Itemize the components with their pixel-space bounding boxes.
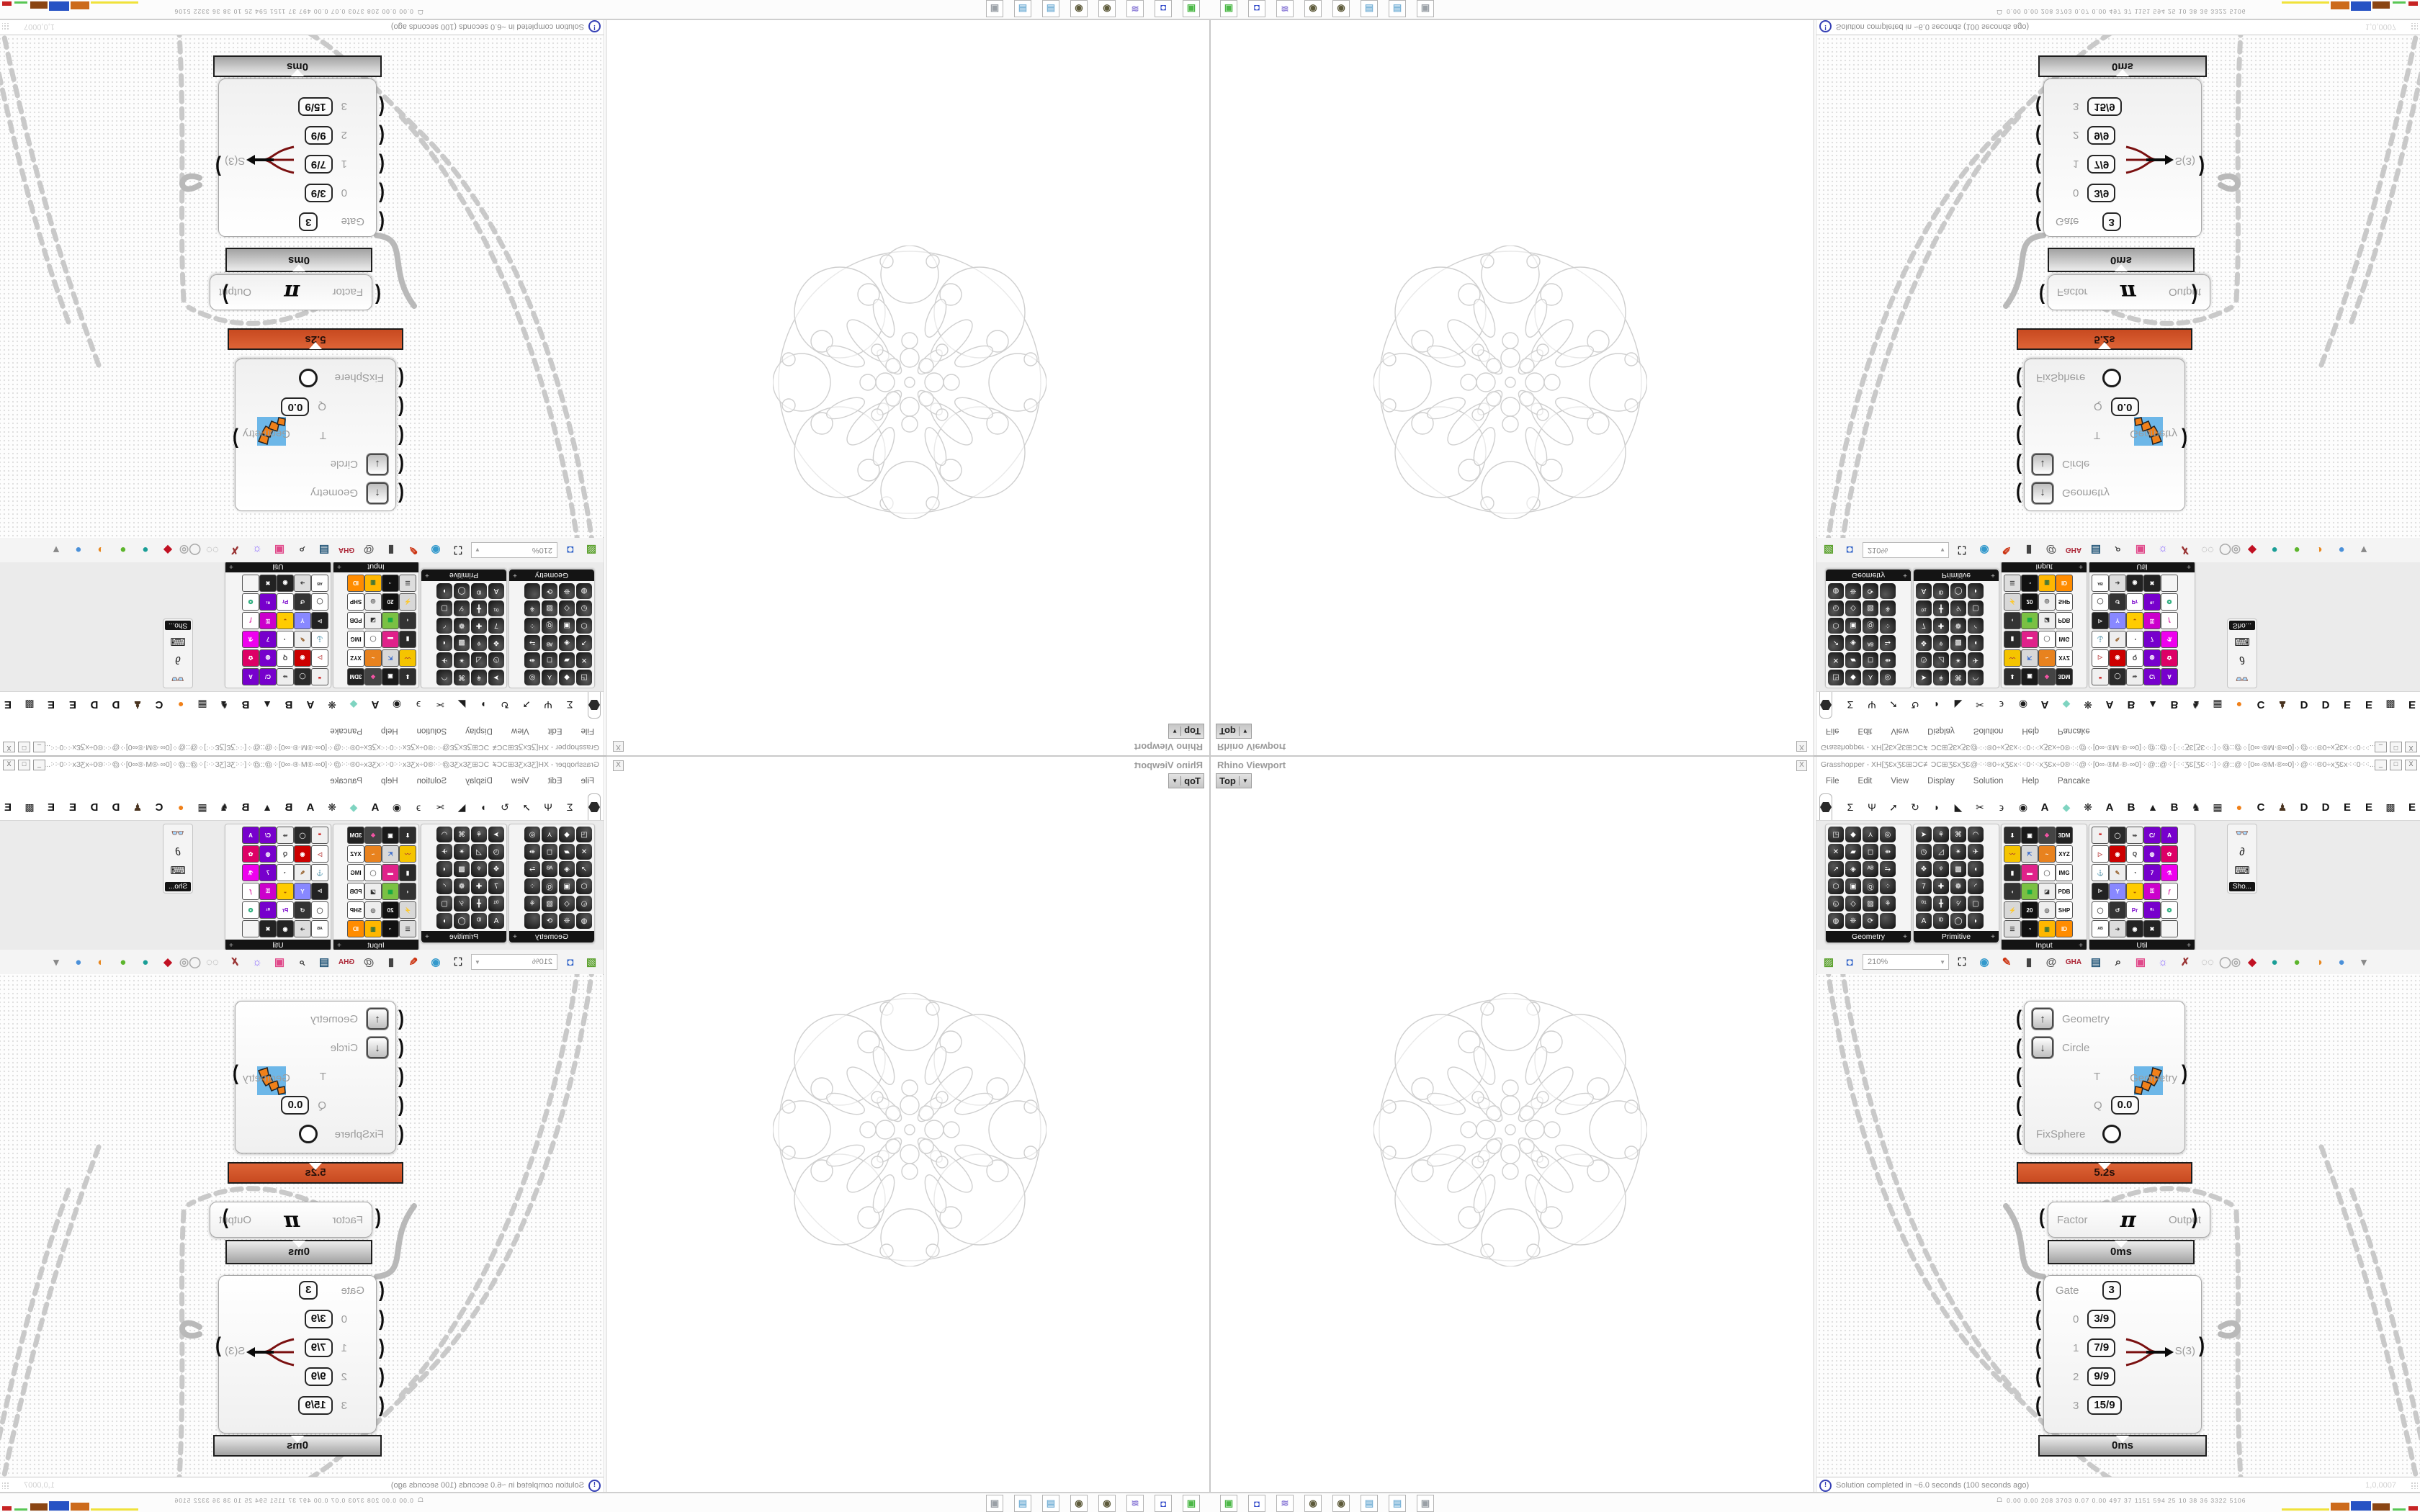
toolbar-icon[interactable]: ▣ xyxy=(272,542,287,558)
component-icon[interactable]: ❝ xyxy=(311,827,328,844)
toolbar-icon[interactable]: ● xyxy=(71,542,86,558)
category-tab[interactable]: ✂ xyxy=(429,801,451,814)
category-tab[interactable]: B xyxy=(235,699,256,711)
component-icon[interactable]: ⇻ xyxy=(524,652,540,668)
component-icon[interactable]: ⚘ xyxy=(1933,670,1949,685)
grasshopper-canvas[interactable]: ↑Geometry(↓Circle(T(Q0.0(FixSphere( Geom… xyxy=(0,974,603,1477)
menu-item-display[interactable]: Display xyxy=(456,777,502,786)
category-tab[interactable]: ◉ xyxy=(386,699,408,711)
component-icon[interactable]: Ⓠ xyxy=(1863,618,1878,634)
component-icon[interactable]: ID xyxy=(2056,920,2073,937)
gate-row-value[interactable]: 3/9 xyxy=(305,1310,333,1328)
component-icon[interactable]: Q xyxy=(277,845,294,863)
component-icon[interactable]: ▰ xyxy=(1845,652,1861,668)
component-icon[interactable]: A xyxy=(488,583,504,599)
expand-plus-icon[interactable]: + xyxy=(2079,563,2083,571)
show-panel-icon[interactable]: ∂ xyxy=(163,843,192,862)
output-connector[interactable]: ) xyxy=(2192,286,2197,304)
component-icon[interactable]: ▦ xyxy=(2021,612,2038,629)
menu-item-pancake[interactable]: Pancake xyxy=(321,777,372,786)
menu-item-edit[interactable]: Edit xyxy=(539,777,572,786)
category-tab[interactable]: ● xyxy=(2228,699,2250,711)
component-icon[interactable]: ▷ xyxy=(2092,649,2109,667)
component-icon[interactable]: ◻ xyxy=(542,652,557,668)
expand-plus-icon[interactable]: + xyxy=(425,572,429,580)
show-panel-icon[interactable]: ∂ xyxy=(163,650,192,669)
component-icon[interactable]: ➜ xyxy=(2109,920,2126,937)
category-tab[interactable]: ▦ xyxy=(192,699,213,711)
component-icon[interactable]: ✴ xyxy=(1950,844,1966,860)
component-icon[interactable]: ⌲ xyxy=(311,612,328,629)
component-icon[interactable] xyxy=(2161,575,2178,592)
palette-panel-label[interactable]: Input+ xyxy=(2002,561,2087,572)
gate-row-value[interactable]: 15/9 xyxy=(298,1396,332,1415)
taskbar-app-icon[interactable]: ≋ xyxy=(1276,1495,1294,1512)
component-icon[interactable]: ◈ xyxy=(559,861,575,877)
toolbar-icon[interactable]: ◯◎ xyxy=(2222,954,2238,970)
component-icon[interactable] xyxy=(242,575,259,592)
input-connector[interactable]: ( xyxy=(379,1397,385,1415)
gate-value[interactable]: 3 xyxy=(2102,212,2121,231)
component-icon[interactable]: ◜ xyxy=(1968,618,1984,634)
component-icon[interactable]: ▦ xyxy=(382,883,399,900)
component-icon[interactable]: ᴬᴮ xyxy=(1863,635,1878,651)
gate-component[interactable]: Gate 3 03/9(17/9(29/9(315/9( S(3) xyxy=(218,78,377,237)
toolbar-icon[interactable]: ▾ xyxy=(48,954,64,970)
component-icon[interactable]: ◈ xyxy=(1845,861,1861,877)
arrow-up-button[interactable]: ↑ xyxy=(2032,1008,2053,1030)
category-tab[interactable]: ▦ xyxy=(2207,801,2228,814)
component-icon[interactable]: IMG xyxy=(2056,631,2073,648)
component-icon[interactable]: ▮ xyxy=(2004,864,2021,881)
component-icon[interactable]: Pr xyxy=(277,901,294,919)
component-icon[interactable]: 7 xyxy=(259,864,277,881)
component-icon[interactable]: ❝ xyxy=(311,668,328,685)
component-icon[interactable]: 7 xyxy=(488,878,504,894)
component-icon[interactable]: ◯ xyxy=(1950,583,1966,599)
input-connector[interactable]: ( xyxy=(2016,1039,2022,1057)
component-icon[interactable]: Y xyxy=(2109,612,2126,629)
category-tab[interactable]: ♞ xyxy=(2185,699,2207,711)
category-tab[interactable]: B xyxy=(2164,801,2185,814)
input-connector[interactable]: ( xyxy=(379,1368,385,1386)
fixsphere-component[interactable]: ↑Geometry(↓Circle(T(Q0.0(FixSphere( Geom… xyxy=(2024,359,2185,511)
component-icon[interactable]: ◍ xyxy=(1828,913,1844,929)
fixsphere-component[interactable]: ↑Geometry(↓Circle(T(Q0.0(FixSphere( Geom… xyxy=(235,359,396,511)
tab-params[interactable] xyxy=(588,793,601,820)
output-connector[interactable]: ) xyxy=(2182,430,2187,448)
show-panel-icon[interactable]: ∂ xyxy=(2228,843,2257,862)
category-tab[interactable]: ❋ xyxy=(321,801,343,814)
component-icon[interactable]: ⋏ xyxy=(1863,827,1878,842)
component-icon[interactable]: ↺ xyxy=(294,901,311,919)
component-icon[interactable]: ▣ xyxy=(559,878,575,894)
toolbar-icon[interactable]: ◆ xyxy=(160,954,176,970)
component-icon[interactable]: ↺ xyxy=(2109,901,2126,919)
component-icon[interactable]: ⇻ xyxy=(1880,844,1896,860)
component-icon[interactable]: ◉ xyxy=(277,920,294,937)
menu-item-file[interactable]: File xyxy=(571,777,604,786)
taskbar-app-icon[interactable]: ▤ xyxy=(1361,0,1378,17)
category-tab[interactable]: ◉ xyxy=(2012,801,2034,814)
show-panel-icon[interactable]: ⌨ xyxy=(2228,631,2257,650)
component-icon[interactable]: ƒ xyxy=(2161,883,2178,900)
output-connector[interactable]: ) xyxy=(2199,1337,2205,1355)
component-icon[interactable]: ◵ xyxy=(1828,600,1844,616)
viewport-projection-button[interactable]: Top ▼ xyxy=(1216,724,1252,739)
tray-expand-icon[interactable]: ☖ xyxy=(1996,8,2002,16)
toolbar-icon[interactable]: ● xyxy=(2334,954,2349,970)
input-connector[interactable]: ( xyxy=(2039,286,2045,304)
toolbar-icon[interactable]: ◯◎ xyxy=(182,954,198,970)
show-panel-icon[interactable]: 👓 xyxy=(2228,669,2257,688)
input-connector[interactable]: ( xyxy=(375,1209,381,1227)
input-connector[interactable]: ( xyxy=(398,1125,404,1143)
component-icon[interactable]: ⇱ xyxy=(382,649,399,667)
component-icon[interactable]: ~ xyxy=(2038,649,2056,667)
component-icon[interactable]: ◗ xyxy=(436,913,452,929)
show-panel-label[interactable]: Sho... xyxy=(2229,621,2255,630)
component-icon[interactable]: ⁰¹ xyxy=(259,901,277,919)
category-tab[interactable]: E xyxy=(2336,699,2358,711)
component-icon[interactable]: 7 xyxy=(2143,864,2161,881)
component-icon[interactable]: ✚ xyxy=(471,618,487,634)
toolbar-icon[interactable]: ◉ xyxy=(428,542,444,558)
component-icon[interactable]: ◖ xyxy=(399,612,416,629)
component-icon[interactable]: ✚ xyxy=(1933,618,1949,634)
category-tab[interactable]: ◣ xyxy=(1948,699,1969,711)
toolbar-icon[interactable]: ✗ xyxy=(2177,954,2193,970)
gate-value[interactable]: 3 xyxy=(299,212,318,231)
window-control-button[interactable]: X xyxy=(2405,742,2417,753)
component-icon[interactable]: ᵠ xyxy=(1933,861,1949,877)
category-tab[interactable]: Σ xyxy=(1839,801,1861,813)
component-icon[interactable]: ◎ xyxy=(524,670,540,685)
component-icon[interactable]: ▢ xyxy=(1968,600,1984,616)
tray-expand-icon[interactable]: ☖ xyxy=(418,1496,423,1504)
toolbar-icon[interactable]: ✎ xyxy=(1999,542,2015,558)
component-icon[interactable]: ▣ xyxy=(559,618,575,634)
toolbar-icon[interactable]: ◆ xyxy=(160,542,176,558)
component-icon[interactable]: ◍ xyxy=(1828,583,1844,599)
category-tab[interactable]: ❋ xyxy=(321,699,343,711)
component-icon[interactable]: ❂ xyxy=(2161,901,2178,919)
category-tab[interactable]: ◣ xyxy=(1948,801,1969,814)
component-icon[interactable]: ▥ xyxy=(2038,575,2056,592)
component-icon[interactable]: PDB xyxy=(347,883,364,900)
category-tab[interactable]: ◗ xyxy=(1926,801,1948,813)
component-icon[interactable]: ⚡ xyxy=(399,593,416,611)
category-tab[interactable]: ϶ xyxy=(1991,699,2012,711)
component-icon[interactable]: ◪ xyxy=(2038,883,2056,900)
grasshopper-canvas[interactable]: ↑Geometry(↓Circle(T(Q0.0(FixSphere( Geom… xyxy=(1817,974,2420,1477)
gate-row-value[interactable]: 9/9 xyxy=(305,1367,333,1386)
input-connector[interactable]: ( xyxy=(2016,369,2022,387)
input-connector[interactable]: ( xyxy=(2016,485,2022,503)
component-icon[interactable]: 3DM xyxy=(347,668,364,685)
component-icon[interactable]: ⁰¹ xyxy=(488,600,504,616)
component-icon[interactable]: ◪ xyxy=(364,883,382,900)
component-icon[interactable]: ◯ xyxy=(454,913,470,929)
component-icon[interactable]: ⌘ xyxy=(454,670,470,685)
component-icon[interactable]: ⟳ xyxy=(1863,583,1878,599)
taskbar-app-icon[interactable]: ≋ xyxy=(1126,0,1144,17)
output-connector[interactable]: ) xyxy=(2192,1209,2197,1227)
component-icon[interactable]: 7 xyxy=(488,618,504,634)
toolbar-icon[interactable]: ⌕ xyxy=(294,954,310,970)
show-panel-label[interactable]: Sho... xyxy=(165,621,191,630)
menu-item-pancake[interactable]: Pancake xyxy=(2048,726,2099,735)
component-icon[interactable]: ⥲ xyxy=(1880,861,1896,877)
input-connector[interactable]: ( xyxy=(398,398,404,416)
palette-panel-label[interactable]: Geometry+ xyxy=(509,931,594,942)
component-icon[interactable]: ⬡ xyxy=(1828,618,1844,634)
component-icon[interactable]: ⁰¹ xyxy=(2143,901,2161,919)
component-icon[interactable]: ◔ xyxy=(277,631,294,648)
component-icon[interactable]: ▩ xyxy=(1950,861,1966,877)
component-icon[interactable]: ✿ xyxy=(2161,845,2178,863)
component-icon[interactable]: ✚ xyxy=(1933,878,1949,894)
component-icon[interactable]: ⚿ xyxy=(2143,883,2161,900)
category-tab[interactable]: C xyxy=(148,699,170,711)
taskbar-app-icon[interactable]: ◉ xyxy=(1098,0,1116,17)
component-icon[interactable]: ✈ xyxy=(1968,844,1984,860)
component-icon[interactable]: XYZ xyxy=(2056,845,2073,863)
category-tab[interactable]: Σ xyxy=(1839,699,1861,711)
component-icon[interactable]: ↗ xyxy=(1828,635,1844,651)
category-tab[interactable]: ◉ xyxy=(2012,699,2034,711)
component-icon[interactable]: ◔ xyxy=(2021,575,2038,592)
toolbar-icon[interactable]: ▾ xyxy=(2356,954,2372,970)
component-icon[interactable]: ▢ xyxy=(1968,896,1984,912)
category-tab[interactable]: A xyxy=(2099,699,2120,711)
input-connector[interactable]: ( xyxy=(2016,1068,2022,1086)
toolbar-icon[interactable]: ⛶ xyxy=(1954,954,1970,970)
component-icon[interactable]: A xyxy=(2161,668,2178,685)
component-icon[interactable]: ❖ xyxy=(488,861,504,877)
zoom-level-input[interactable]: 210% ▼ xyxy=(471,954,557,970)
category-tab[interactable]: A xyxy=(364,801,386,814)
input-connector[interactable]: ( xyxy=(2035,1310,2041,1328)
toolbar-icon[interactable]: ◆ xyxy=(2244,954,2260,970)
palette-panel-label[interactable]: Geometry+ xyxy=(1826,570,1911,581)
component-icon[interactable]: ◯ xyxy=(2038,864,2056,881)
component-icon[interactable]: ✴ xyxy=(454,652,470,668)
menu-item-edit[interactable]: Edit xyxy=(539,726,572,735)
toolbar-icon[interactable]: GHA xyxy=(339,954,354,970)
viewport-projection-button[interactable]: Top ▼ xyxy=(1168,724,1204,739)
category-tab[interactable]: E xyxy=(62,699,84,711)
toolbar-icon[interactable]: ◉ xyxy=(1976,542,1992,558)
category-tab[interactable]: ➚ xyxy=(516,801,537,814)
component-icon[interactable]: A xyxy=(1916,913,1932,929)
component-icon[interactable]: ◖ xyxy=(436,861,452,877)
show-panel-icon[interactable]: ⌨ xyxy=(163,631,192,650)
component-icon[interactable]: ID xyxy=(347,920,364,937)
component-icon[interactable]: ⚘ xyxy=(524,600,540,616)
component-icon[interactable]: ⇻ xyxy=(1880,652,1896,668)
category-tab[interactable]: ◆ xyxy=(343,699,364,711)
component-icon[interactable]: ᴬᴮ xyxy=(542,861,557,877)
component-icon[interactable]: ▰ xyxy=(559,652,575,668)
component-icon[interactable]: ▦ xyxy=(2021,883,2038,900)
component-icon[interactable]: ▢ xyxy=(436,600,452,616)
toolbar-icon[interactable]: ▤ xyxy=(2088,542,2104,558)
component-icon[interactable]: ✎ xyxy=(2109,864,2126,881)
component-icon[interactable]: ◯ xyxy=(454,583,470,599)
toolbar-icon[interactable]: ▣ xyxy=(2133,542,2148,558)
toolbar-icon[interactable]: ☼ xyxy=(2155,542,2171,558)
window-control-button[interactable]: _ xyxy=(2375,760,2387,770)
component-icon[interactable]: ◆ xyxy=(1845,670,1861,685)
taskbar-app-icon[interactable]: ◉ xyxy=(1098,1495,1116,1512)
component-icon[interactable]: A xyxy=(242,668,259,685)
component-icon[interactable]: ᶜ⁄ xyxy=(454,896,470,912)
component-icon[interactable]: ◔ xyxy=(2126,631,2143,648)
toolbar-icon[interactable]: ▣ xyxy=(272,954,287,970)
component-icon[interactable]: 3DM xyxy=(347,827,364,844)
category-tab[interactable]: ◣ xyxy=(451,801,472,814)
component-icon[interactable]: ◖ xyxy=(2004,612,2021,629)
save-file-icon[interactable]: ◘ xyxy=(1842,542,1857,558)
toolbar-icon[interactable]: ⛶ xyxy=(450,542,466,558)
component-icon[interactable]: ⚘ xyxy=(524,896,540,912)
gate-row-value[interactable]: 15/9 xyxy=(2087,1396,2121,1415)
viewport-close-button[interactable]: X xyxy=(613,760,624,771)
gate-row-value[interactable]: 9/9 xyxy=(2087,1367,2115,1386)
category-tab[interactable]: ♞ xyxy=(2185,801,2207,814)
input-connector[interactable]: ( xyxy=(398,427,404,445)
input-connector[interactable]: ( xyxy=(398,485,404,503)
category-tab[interactable]: Ψ xyxy=(537,801,559,813)
arrow-up-button[interactable]: ↑ xyxy=(2032,482,2053,504)
taskbar-app-icon[interactable]: ◉ xyxy=(1070,0,1088,17)
category-tab[interactable]: ➚ xyxy=(1883,699,1904,711)
component-icon[interactable]: ◔ xyxy=(2021,920,2038,937)
component-icon[interactable]: ✚ xyxy=(471,878,487,894)
component-icon[interactable]: ❖ xyxy=(1916,861,1932,877)
show-panel-icon[interactable]: ∂ xyxy=(2228,650,2257,669)
expand-plus-icon[interactable]: + xyxy=(229,563,233,571)
component-icon[interactable]: ◍ xyxy=(576,583,592,599)
component-icon[interactable]: ◜ xyxy=(436,878,452,894)
component-icon[interactable]: ▦ xyxy=(382,612,399,629)
window-control-button[interactable]: □ xyxy=(18,742,30,753)
palette-panel-label[interactable]: Input+ xyxy=(333,561,418,572)
component-icon[interactable]: ✈ xyxy=(1968,652,1984,668)
component-icon[interactable]: ◷ xyxy=(488,844,504,860)
param-value-box[interactable]: 0.0 xyxy=(2111,397,2139,416)
component-icon[interactable]: ◯ xyxy=(2092,901,2109,919)
component-icon[interactable]: ◉ xyxy=(2126,575,2143,592)
menu-item-help[interactable]: Help xyxy=(2012,777,2048,786)
component-icon[interactable] xyxy=(242,920,259,937)
component-icon[interactable]: ◎ xyxy=(1880,827,1896,842)
component-icon[interactable]: ⬇ xyxy=(399,668,416,685)
component-icon[interactable]: ⚿ xyxy=(259,883,277,900)
component-icon[interactable]: ↺ xyxy=(2109,593,2126,611)
component-icon[interactable]: C/ xyxy=(259,668,277,685)
component-icon[interactable] xyxy=(2161,920,2178,937)
input-connector[interactable]: ( xyxy=(398,456,404,474)
component-icon[interactable]: ⁰¹ xyxy=(2143,593,2161,611)
category-tab[interactable]: E xyxy=(2401,699,2420,711)
toolbar-icon[interactable]: ● xyxy=(2267,954,2282,970)
component-icon[interactable]: ╋ xyxy=(471,896,487,912)
component-icon[interactable]: ◯ xyxy=(1950,913,1966,929)
category-tab[interactable]: C xyxy=(2250,699,2272,711)
component-icon[interactable]: C/ xyxy=(259,827,277,844)
component-icon[interactable]: ◠ xyxy=(436,827,452,842)
category-tab[interactable]: ◉ xyxy=(386,801,408,814)
component-icon[interactable]: A xyxy=(2161,827,2178,844)
input-connector[interactable]: ( xyxy=(379,1282,385,1300)
output-connector[interactable]: ) xyxy=(233,430,238,448)
category-tab[interactable]: D xyxy=(105,699,127,711)
component-icon[interactable]: ⟳ xyxy=(542,913,557,929)
component-icon[interactable]: ᴵᴰ xyxy=(471,583,487,599)
taskbar-app-icon[interactable]: ▣ xyxy=(1220,1495,1237,1512)
menu-item-edit[interactable]: Edit xyxy=(1849,726,1882,735)
component-icon[interactable]: ✴ xyxy=(1950,652,1966,668)
component-icon[interactable]: 〰 xyxy=(399,845,416,863)
component-icon[interactable]: ⁰¹ xyxy=(1916,896,1932,912)
component-icon[interactable]: ▮ xyxy=(399,631,416,648)
component-icon[interactable]: ▨ xyxy=(542,896,557,912)
component-icon[interactable]: IMG xyxy=(347,864,364,881)
component-icon[interactable]: ◈ xyxy=(559,635,575,651)
component-icon[interactable]: ◎ xyxy=(2038,593,2056,611)
output-connector[interactable]: ) xyxy=(215,1337,221,1355)
toolbar-icon[interactable]: ✗ xyxy=(227,542,243,558)
toolbar-icon[interactable]: ▤ xyxy=(2088,954,2104,970)
toolbar-icon[interactable]: GHA xyxy=(2066,542,2081,558)
taskbar-app-icon[interactable]: ▣ xyxy=(986,1495,1003,1512)
tab-params[interactable] xyxy=(1819,692,1832,719)
component-icon[interactable]: ▣ xyxy=(382,827,399,844)
component-icon[interactable]: C/ xyxy=(2143,668,2161,685)
expand-plus-icon[interactable]: + xyxy=(2079,942,2083,950)
toolbar-icon[interactable]: ⛶ xyxy=(1954,542,1970,558)
toolbar-icon[interactable]: ◆ xyxy=(2244,542,2260,558)
taskbar-app-icon[interactable]: ◉ xyxy=(1304,1495,1322,1512)
palette-panel-label[interactable]: Geometry+ xyxy=(1826,931,1911,942)
category-tab[interactable]: ▲ xyxy=(256,699,278,711)
menu-item-help[interactable]: Help xyxy=(372,777,408,786)
component-icon[interactable]: ◠ xyxy=(1968,827,1984,842)
component-icon[interactable]: SHP xyxy=(347,901,364,919)
component-icon[interactable]: ◖ xyxy=(399,883,416,900)
component-icon[interactable] xyxy=(524,913,540,929)
component-icon[interactable]: ⬡ xyxy=(576,618,592,634)
component-icon[interactable]: Ⓠ xyxy=(542,618,557,634)
param-value-box[interactable]: 0.0 xyxy=(281,1096,309,1115)
expand-plus-icon[interactable]: + xyxy=(513,572,517,580)
component-icon[interactable]: ◒ xyxy=(2126,612,2143,629)
component-icon[interactable]: ◗ xyxy=(436,583,452,599)
component-icon[interactable]: ⇱ xyxy=(2021,649,2038,667)
component-icon[interactable]: ◯ xyxy=(2109,827,2126,844)
input-connector[interactable]: ( xyxy=(2016,427,2022,445)
category-tab[interactable]: ◗ xyxy=(472,801,494,813)
component-icon[interactable]: ⬇ xyxy=(2004,668,2021,685)
category-tab[interactable]: ▩ xyxy=(19,801,40,814)
save-file-icon[interactable]: ◘ xyxy=(563,542,578,558)
component-icon[interactable]: ◿ xyxy=(1933,652,1949,668)
toolbar-icon[interactable]: ☼ xyxy=(249,954,265,970)
component-icon[interactable]: ➥ xyxy=(277,668,294,685)
gate-component[interactable]: Gate 3 03/9(17/9(29/9(315/9( S(3) xyxy=(2043,78,2202,237)
